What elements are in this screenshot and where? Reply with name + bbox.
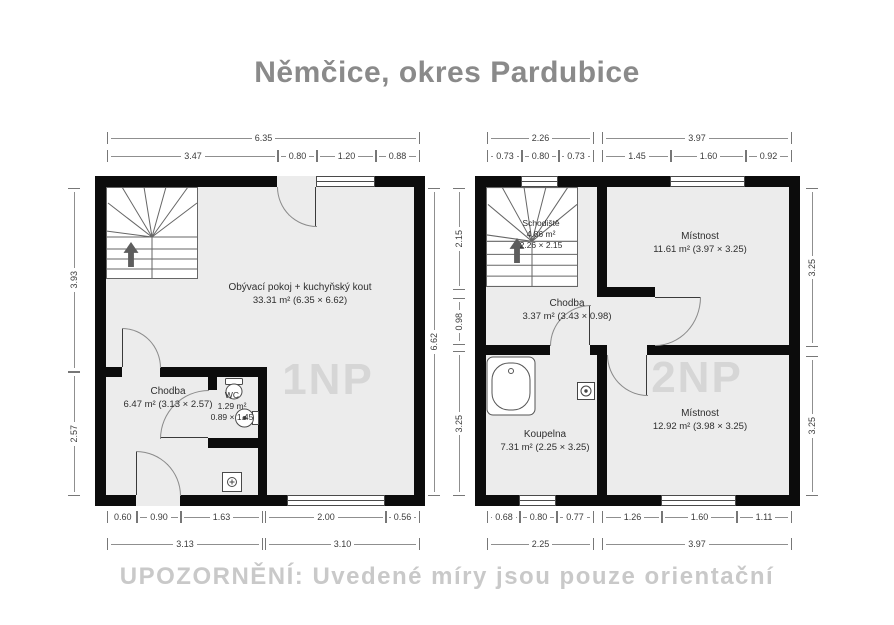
dim-label: 0.80 bbox=[521, 150, 560, 162]
dim-label: 2.25 bbox=[487, 538, 594, 550]
disclaimer-text: UPOZORNĚNÍ: Uvedené míry jsou pouze orie… bbox=[0, 563, 894, 591]
page-title: Němčice, okres Pardubice bbox=[0, 56, 894, 90]
dim-label: 1.60 bbox=[661, 511, 738, 523]
window bbox=[661, 495, 736, 506]
dim-label: 3.93 bbox=[68, 188, 80, 372]
wall bbox=[597, 176, 607, 297]
wall bbox=[208, 438, 267, 448]
window bbox=[519, 495, 556, 506]
dim-label: 1.45 bbox=[602, 150, 672, 162]
dim-label: 2.26 bbox=[487, 132, 594, 144]
wall bbox=[645, 287, 655, 297]
dim-label: 3.25 bbox=[806, 188, 818, 347]
door-arc bbox=[655, 297, 701, 346]
bathtub-icon bbox=[486, 356, 536, 416]
dim-label: 3.13 bbox=[107, 538, 263, 550]
dim-label: 0.80 bbox=[277, 150, 318, 162]
door-opening bbox=[122, 367, 160, 377]
wall bbox=[789, 176, 800, 506]
door-opening bbox=[136, 495, 180, 506]
dim-label: 2.00 bbox=[265, 511, 387, 523]
washing-machine-icon bbox=[577, 382, 595, 400]
room-label-room1: Místnost 11.61 m² (3.97 × 3.25) bbox=[620, 231, 780, 255]
staircase-icon bbox=[106, 187, 198, 279]
wall bbox=[95, 176, 106, 506]
dim-label: 1.11 bbox=[736, 511, 792, 523]
dim-label: 0.90 bbox=[136, 511, 182, 523]
dim-label: 6.35 bbox=[107, 132, 420, 144]
room-label-living: Obývací pokoj + kuchyňský kout 33.31 m² … bbox=[150, 282, 450, 306]
window bbox=[316, 176, 375, 187]
room-label-bathroom: Koupelna 7.31 m² (2.25 × 3.25) bbox=[475, 429, 615, 453]
dim-label: 3.97 bbox=[602, 132, 792, 144]
door-opening bbox=[607, 345, 647, 355]
up-arrow-icon bbox=[123, 242, 139, 267]
room-label-wc: WC 1.29 m² 0.89 × 1.45 bbox=[198, 390, 266, 423]
window bbox=[521, 176, 558, 187]
dim-label: 3.10 bbox=[265, 538, 420, 550]
dim-label: 0.80 bbox=[519, 511, 558, 523]
dim-label: 2.15 bbox=[453, 188, 465, 290]
floor-plan-2np: 2NP Schodiště 4.86 m² 2.26 × 2.15 Místno… bbox=[475, 176, 800, 506]
dim-label: 0.98 bbox=[453, 298, 465, 345]
dim-label: 0.73 bbox=[558, 150, 594, 162]
window bbox=[670, 176, 745, 187]
dim-label: 0.88 bbox=[375, 150, 420, 162]
dim-label: 0.77 bbox=[556, 511, 594, 523]
window bbox=[287, 495, 385, 506]
dim-label: 0.73 bbox=[487, 150, 523, 162]
dim-label: 3.97 bbox=[602, 538, 792, 550]
room-label-hall: Chodba 3.37 m² (3.43 × 0.98) bbox=[497, 298, 637, 322]
dim-label: 1.60 bbox=[670, 150, 747, 162]
dim-label: 0.60 bbox=[107, 511, 138, 523]
floor-drain-icon bbox=[222, 472, 242, 492]
dim-label: 1.20 bbox=[316, 150, 377, 162]
door-arc bbox=[122, 328, 161, 368]
wall bbox=[95, 176, 425, 187]
floor-plan-1np: 1NP Obývací pokoj + kuchyňský kout 33.31… bbox=[95, 176, 425, 506]
room-label-room2: Místnost 12.92 m² (3.98 × 3.25) bbox=[620, 408, 780, 432]
dim-label: 1.63 bbox=[180, 511, 263, 523]
door-arc bbox=[136, 451, 181, 496]
dim-label: 1.26 bbox=[602, 511, 663, 523]
dim-label: 0.56 bbox=[385, 511, 420, 523]
dim-label: 3.25 bbox=[806, 356, 818, 496]
dim-label: 0.68 bbox=[487, 511, 521, 523]
dim-label: 6.62 bbox=[428, 188, 440, 496]
dim-label: 0.92 bbox=[745, 150, 792, 162]
wall bbox=[607, 287, 645, 297]
room-label-stairs: Schodiště 4.86 m² 2.26 × 2.15 bbox=[491, 218, 591, 251]
dim-label: 3.47 bbox=[107, 150, 279, 162]
dim-label: 3.25 bbox=[453, 351, 465, 496]
dim-label: 2.57 bbox=[68, 372, 80, 496]
wall bbox=[414, 176, 425, 506]
wall bbox=[475, 176, 486, 506]
door-opening bbox=[277, 176, 316, 187]
door-arc bbox=[277, 187, 317, 227]
door-opening bbox=[550, 345, 590, 355]
watermark-2np: 2NP bbox=[597, 356, 797, 400]
